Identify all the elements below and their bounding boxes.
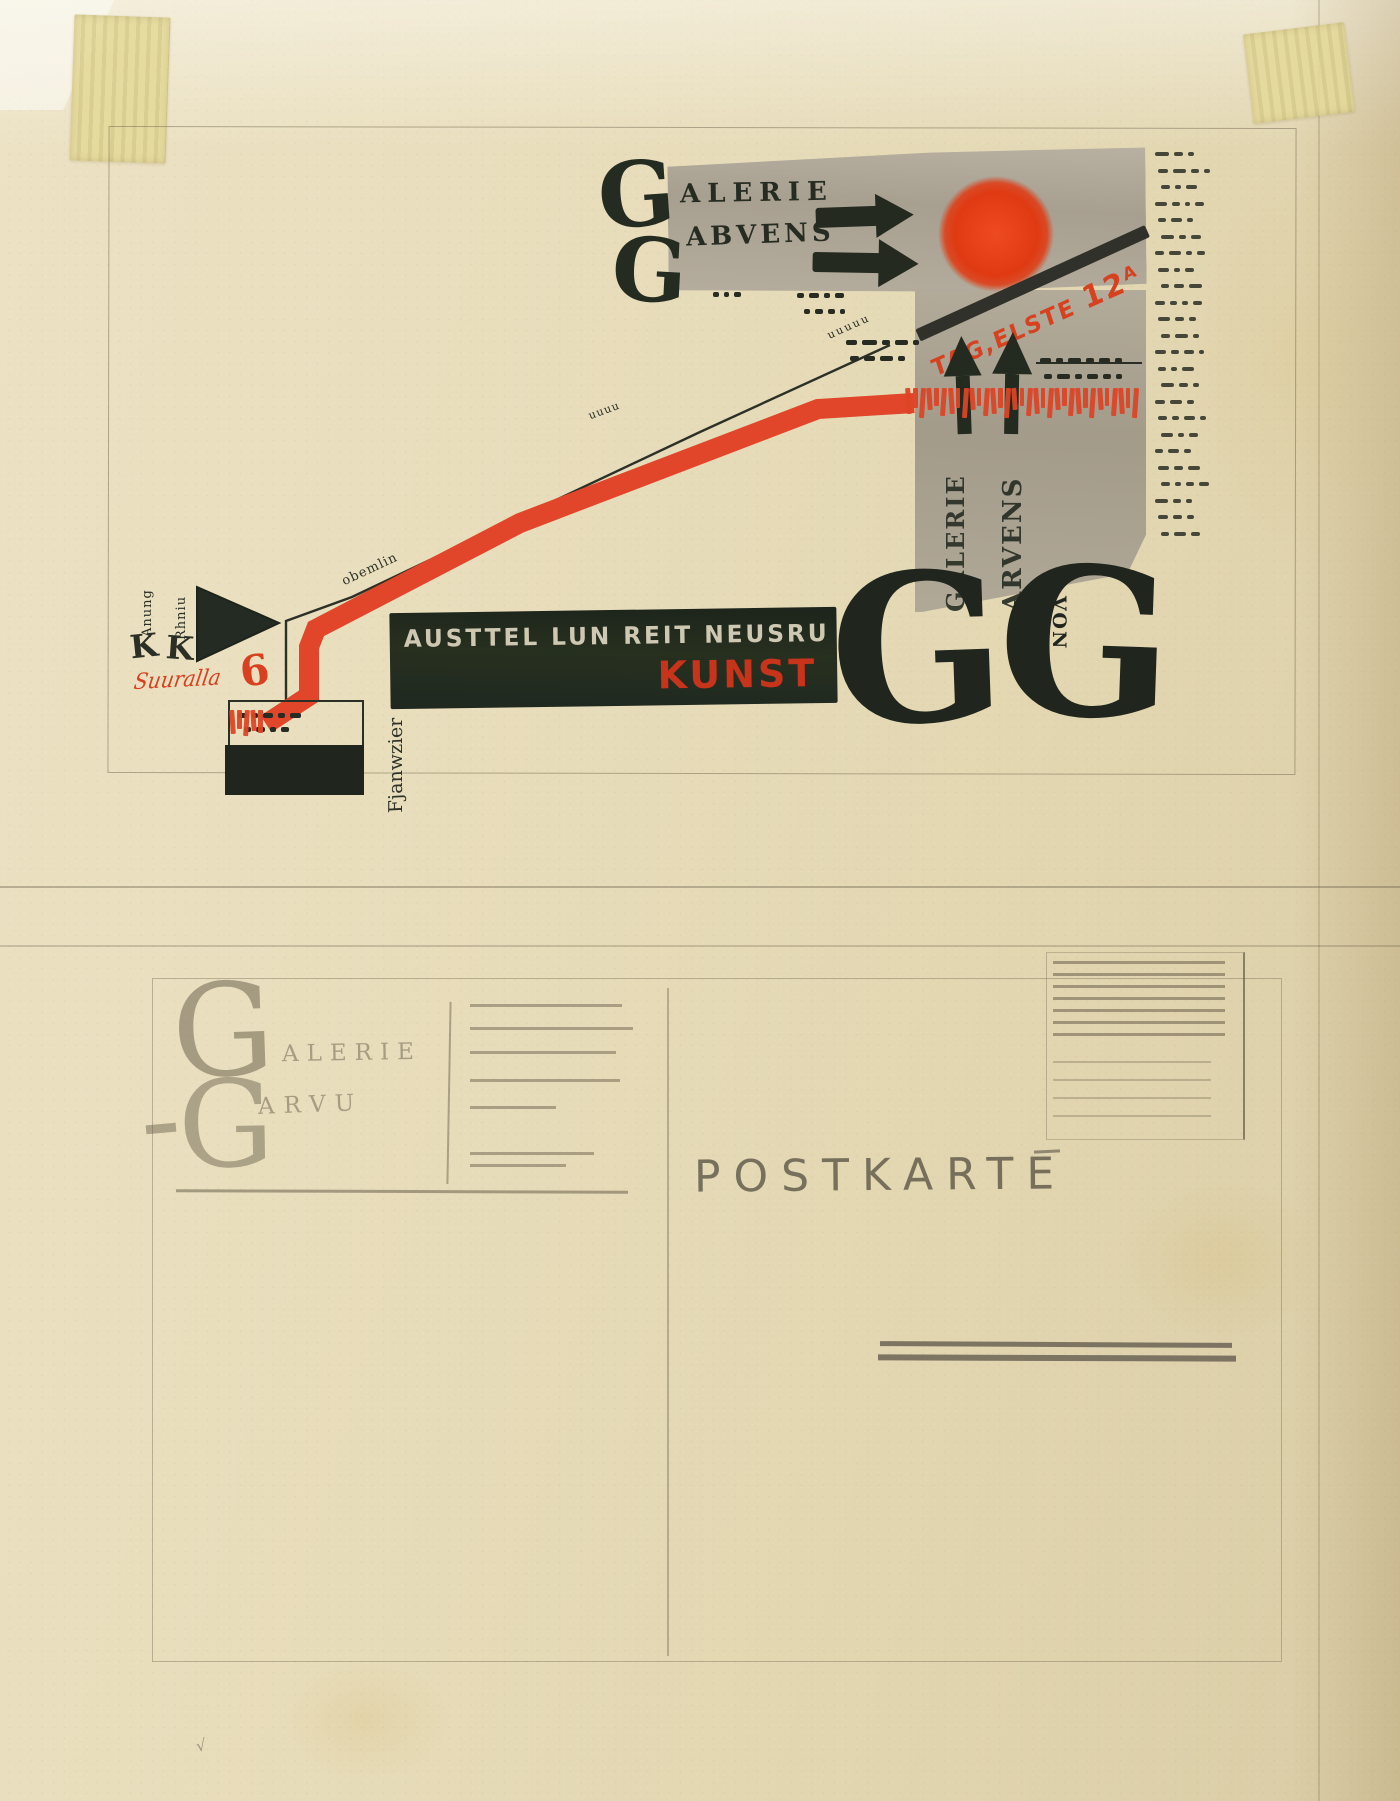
margin-scribble-row [1155, 499, 1192, 503]
von-label: VON [1048, 596, 1070, 666]
right-edge-shadow [1290, 0, 1400, 1801]
margin-scribble-row [1155, 301, 1202, 305]
margin-scribble-dash [1184, 449, 1191, 453]
margin-scribble-dash [1191, 235, 1201, 239]
ink-dash [797, 293, 804, 298]
margin-scribble-dash [1193, 334, 1199, 338]
margin-scribble-dash [1155, 350, 1166, 354]
red-hatch-tick [251, 710, 257, 731]
margin-scribble-dash [1161, 383, 1174, 387]
margin-scribble-dash [1161, 433, 1173, 437]
ink-dash [913, 340, 919, 345]
up-arrow-1 [942, 335, 983, 434]
margin-scribble-dash [1158, 268, 1169, 272]
red-hatch-tick [1054, 388, 1060, 410]
station-word-1: Anung [140, 545, 155, 637]
ink-dash [734, 292, 741, 297]
gallery-name-line2: ABVENS [686, 217, 836, 252]
ink-dash [804, 309, 810, 314]
red-hatch-tick [229, 710, 235, 734]
margin-scribble-dash [1172, 202, 1180, 206]
margin-scribble-dash [1193, 383, 1199, 387]
address-scribble-line [470, 1051, 616, 1054]
margin-scribble-dash [1195, 202, 1204, 206]
stamp-ruled-line [1053, 1033, 1225, 1036]
red-hatch-tick [1105, 388, 1110, 406]
address-scribble-line [470, 1079, 620, 1082]
margin-scribble-row [1155, 449, 1191, 453]
stamp-ruled-line-light [1053, 1061, 1211, 1063]
margin-scribble-dash [1171, 350, 1179, 354]
ink-dash [864, 356, 875, 361]
margin-scribble-dash [1174, 284, 1184, 288]
margin-scribble-dash [1170, 301, 1177, 305]
ink-dash [1057, 374, 1070, 379]
ink-dash [835, 293, 844, 298]
postcard-divider-line [667, 988, 669, 1656]
margin-scribble-dash [1171, 218, 1182, 222]
margin-scribble-row [1161, 532, 1200, 536]
margin-scribble-row [1158, 466, 1200, 470]
stamp-box [1046, 952, 1245, 1140]
ink-dash-row [804, 309, 845, 314]
red-hatch-tick [1089, 388, 1096, 418]
margin-scribble-row [1155, 350, 1204, 354]
red-hatch-tick [919, 388, 926, 418]
red-hatch-tick [243, 710, 249, 736]
red-hatch-tick [1047, 388, 1054, 418]
margin-scribble-row [1158, 515, 1194, 519]
margin-scribble-dash [1155, 202, 1167, 206]
ink-dash [290, 713, 301, 718]
margin-scribble-dash [1170, 400, 1182, 404]
ink-dash [850, 356, 859, 361]
margin-scribble-dash [1173, 515, 1182, 519]
station-k-2: K [165, 631, 195, 665]
margin-scribble-dash [1155, 152, 1169, 156]
ink-dash [1115, 358, 1122, 363]
margin-scribble-dash [1179, 235, 1186, 239]
red-hatch-tick [948, 388, 954, 414]
red-hatch-tick [1083, 388, 1088, 408]
ink-dash [809, 293, 819, 298]
ink-dash-row [1044, 374, 1122, 379]
pencil-logo-line2: ARVU [258, 1090, 364, 1120]
red-hatch-tick [998, 388, 1003, 408]
logo-g-top-2: G [610, 224, 690, 316]
red-hatch-tick [956, 388, 961, 408]
red-hatch-tick [1068, 388, 1074, 416]
ink-dash [882, 340, 890, 345]
margin-scribble-row [1161, 482, 1209, 486]
red-hatch-tick [983, 388, 989, 416]
stamp-ruled-line [1053, 1009, 1225, 1012]
red-hatch-tick [934, 388, 939, 406]
red-hatch-tick [913, 388, 918, 408]
red-hatch-tick [977, 388, 982, 406]
address-scribble-line [470, 1004, 622, 1007]
address-scribble-line [470, 1106, 556, 1109]
margin-scribble-dash [1158, 218, 1166, 222]
margin-scribble-row [1161, 334, 1199, 338]
margin-scribble-row [1155, 251, 1205, 255]
margin-scribble-dash [1158, 416, 1167, 420]
margin-scribble-row [1161, 235, 1201, 239]
ink-dash [862, 340, 877, 345]
red-hatch-tick [927, 388, 933, 410]
margin-scribble-dash [1158, 317, 1170, 321]
margin-scribble-dash [1186, 185, 1197, 189]
big-g-right: G [994, 539, 1176, 750]
margin-scribble-dash [1185, 268, 1194, 272]
margin-scribble-dash [1182, 301, 1188, 305]
margin-scribble-dash [1197, 251, 1205, 255]
red-hatch-tick [1041, 388, 1046, 408]
margin-scribble-dash [1189, 284, 1202, 288]
ink-dash [880, 356, 893, 361]
red-hatch-band [906, 388, 1138, 418]
ink-dash [1044, 374, 1052, 379]
margin-scribble-dash [1188, 466, 1200, 470]
margin-scribble-dash [1185, 202, 1190, 206]
ink-dash [846, 340, 857, 345]
banner-white-text: AUSTTEL LUN REIT NEUSRU [404, 619, 830, 653]
red-hatch-tick [990, 388, 996, 414]
margin-scribble-dash [1187, 400, 1194, 404]
margin-scribble-dash [1186, 251, 1192, 255]
margin-scribble-dash [1199, 482, 1209, 486]
crease-line-2 [0, 945, 1400, 947]
corner-check-mark: √ [194, 1735, 207, 1755]
ink-dash [1087, 374, 1098, 379]
ink-dash [281, 727, 289, 732]
margin-scribble-dash [1158, 466, 1169, 470]
margin-scribble-dash [1175, 482, 1181, 486]
margin-scribble-dash [1200, 416, 1206, 420]
stamp-ruled-line-light [1053, 1097, 1211, 1099]
ink-dash [1086, 358, 1094, 363]
red-hatch-tick [1126, 388, 1131, 408]
margin-scribble-dash [1161, 235, 1174, 239]
red-hatch-tick [905, 388, 911, 414]
margin-scribble-dash [1188, 152, 1194, 156]
address-scribble-line [470, 1027, 633, 1030]
margin-scribble-dash [1175, 185, 1181, 189]
ink-dash [840, 309, 845, 314]
ink-dash [1116, 374, 1122, 379]
red-hatch-tick [1020, 388, 1025, 406]
exhibition-banner: AUSTTEL LUN REIT NEUSRU KUNST [389, 607, 837, 709]
station-k-1: K [128, 629, 159, 664]
tape-top-right [1243, 22, 1355, 124]
ink-dash [815, 309, 823, 314]
margin-scribble-dash [1168, 449, 1179, 453]
margin-scribble-dash [1173, 499, 1181, 503]
margin-scribble-dash [1193, 301, 1202, 305]
margin-scribble-dash [1187, 218, 1193, 222]
red-hatch-tick [1075, 388, 1081, 414]
margin-scribble-dash [1155, 400, 1165, 404]
red-hatch-tick [1062, 388, 1067, 406]
stain-2 [280, 1660, 450, 1780]
red-number-six: 6 [237, 648, 272, 694]
stamp-ruled-line [1053, 973, 1225, 976]
stamp-ruled-line [1053, 961, 1225, 964]
margin-scribble-dash [1184, 350, 1194, 354]
margin-scribble-row [1158, 416, 1206, 420]
ink-dash [1040, 358, 1051, 363]
margin-scribble-dash [1199, 350, 1204, 354]
margin-scribble-dash [1171, 367, 1177, 371]
margin-scribble-row [1155, 202, 1204, 206]
red-hatch-tick [962, 388, 969, 418]
margin-scribble-dash [1175, 334, 1188, 338]
stamp-ruled-line [1053, 997, 1225, 1000]
margin-scribble-dash [1172, 416, 1179, 420]
stamp-ruled-line-light [1053, 1079, 1211, 1081]
banner-red-text: KUNST [657, 651, 817, 697]
margin-scribble-row [1161, 185, 1197, 189]
margin-scribble-row [1158, 367, 1194, 371]
margin-scribble-dash [1155, 499, 1168, 503]
red-hatch-tick [1012, 388, 1018, 410]
red-hatch-tick [1097, 388, 1103, 410]
margin-scribble-dash [1161, 532, 1169, 536]
ink-dash [824, 293, 830, 298]
station-word-2: Rhniu [174, 550, 189, 640]
red-hatch-tick [1026, 388, 1032, 416]
margin-scribble-row [1158, 317, 1196, 321]
ink-dash [724, 292, 729, 297]
red-hatch-tick [1111, 388, 1117, 416]
margin-scribble-dash [1186, 482, 1194, 486]
ink-dash [263, 713, 273, 718]
up-arrow-2 [991, 332, 1033, 435]
red-script-label: Suuralla [132, 665, 223, 695]
margin-scribble-dash [1184, 416, 1195, 420]
address-scribble-line [470, 1152, 594, 1155]
margin-scribble-dash [1161, 334, 1170, 338]
margin-scribble-row [1158, 218, 1193, 222]
margin-scribble-dash [1161, 284, 1169, 288]
ink-dash-row [797, 293, 844, 298]
margin-scribble-dash [1179, 383, 1188, 387]
margin-scribble-row [1161, 433, 1198, 437]
margin-scribble-dash [1174, 466, 1183, 470]
margin-scribble-dash [1158, 515, 1168, 519]
ink-dash [278, 713, 285, 718]
gallery-name-line1: ALERIE [680, 177, 834, 210]
ink-dash-row [850, 356, 905, 361]
margin-scribble-dash [1186, 499, 1192, 503]
margin-scribble-dash [1178, 433, 1184, 437]
red-hatch-band [230, 710, 263, 736]
stamp-ruled-line-light [1053, 1115, 1211, 1117]
margin-scribble-dash [1191, 169, 1199, 173]
pencil-logo-g2: G [177, 1065, 275, 1187]
margin-scribble-row [1155, 152, 1194, 156]
margin-scribble-dash [1158, 367, 1166, 371]
artwork-scan: G G ALERIE ABVENS TAG,ELSTE 12A GALERIE … [0, 0, 1400, 1801]
red-hatch-tick [1033, 388, 1039, 414]
ink-dash [1075, 374, 1082, 379]
ink-dash [1056, 358, 1063, 363]
ink-dash [713, 292, 719, 297]
ink-dash [1103, 374, 1111, 379]
red-hatch-tick [1118, 388, 1124, 414]
margin-scribble-dash [1155, 301, 1165, 305]
margin-scribble-dash [1174, 268, 1180, 272]
margin-scribble-dash [1174, 532, 1186, 536]
margin-scribble-dash [1155, 251, 1164, 255]
red-hatch-tick [969, 388, 975, 410]
ink-dash [270, 727, 276, 732]
red-hatch-tick [1004, 388, 1011, 418]
red-hatch-tick [237, 710, 242, 729]
ink-dash [898, 356, 905, 361]
signature-line-2 [878, 1354, 1236, 1361]
ink-dash-row [846, 340, 919, 345]
margin-scribble-dash [1187, 515, 1194, 519]
margin-scribble-dash [1161, 185, 1170, 189]
margin-scribble-dash [1169, 251, 1181, 255]
ink-dash [1099, 358, 1110, 363]
ink-dash [1068, 358, 1081, 363]
margin-scribble-row [1161, 284, 1202, 288]
margin-scribble-row [1161, 383, 1199, 387]
margin-scribble-dash [1173, 169, 1186, 173]
pencil-logo-line1: ALERIE [282, 1039, 422, 1067]
margin-scribble-dash [1204, 169, 1210, 173]
ink-dash-row [1040, 358, 1122, 363]
big-g-left: G [826, 545, 1008, 756]
right-edge-crease [1318, 0, 1320, 1801]
red-hatch-tick [940, 388, 946, 416]
ink-dash-row [713, 292, 741, 297]
crease-line-1 [0, 886, 1400, 888]
margin-scribble-dash [1182, 367, 1194, 371]
margin-scribble-dash [1161, 482, 1170, 486]
margin-scribble-dash [1155, 449, 1163, 453]
margin-scribble-dash [1189, 317, 1196, 321]
margin-scribble-dash [1191, 532, 1200, 536]
red-hatch-tick [258, 710, 263, 733]
margin-scribble-dash [1174, 152, 1183, 156]
margin-scribble-dash [1175, 317, 1184, 321]
margin-scribble-row [1155, 400, 1194, 404]
postkarte-title: POSTKARTE [694, 1148, 1068, 1202]
margin-scribble-row [1158, 169, 1210, 173]
margin-scribble-dash [1189, 433, 1198, 437]
margin-scribble-row [1158, 268, 1194, 272]
address-scribble-line [470, 1164, 566, 1167]
stamp-ruled-line [1053, 985, 1225, 988]
margin-scribble-dash [1158, 169, 1168, 173]
ink-dash [895, 340, 908, 345]
stamp-ruled-line [1053, 1021, 1225, 1024]
ink-dash [828, 309, 835, 314]
